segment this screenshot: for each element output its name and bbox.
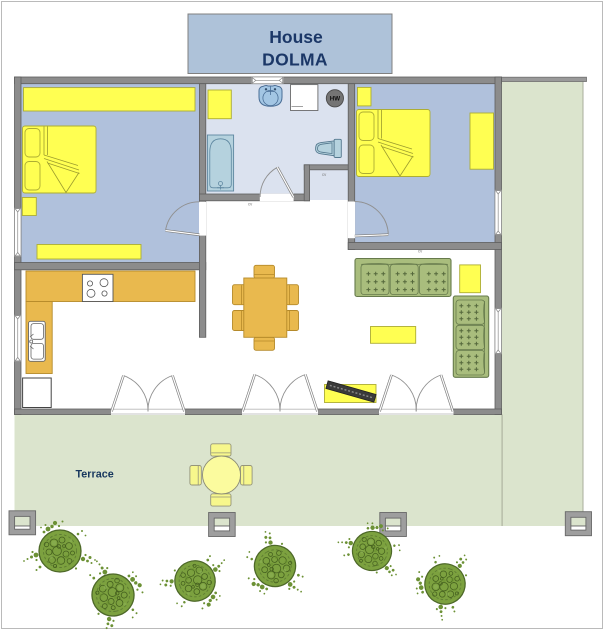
svg-text:House: House [269,27,323,47]
svg-text:DOLMA: DOLMA [262,50,328,70]
svg-text:HW: HW [330,96,340,103]
svg-text:Terrace: Terrace [76,469,114,481]
